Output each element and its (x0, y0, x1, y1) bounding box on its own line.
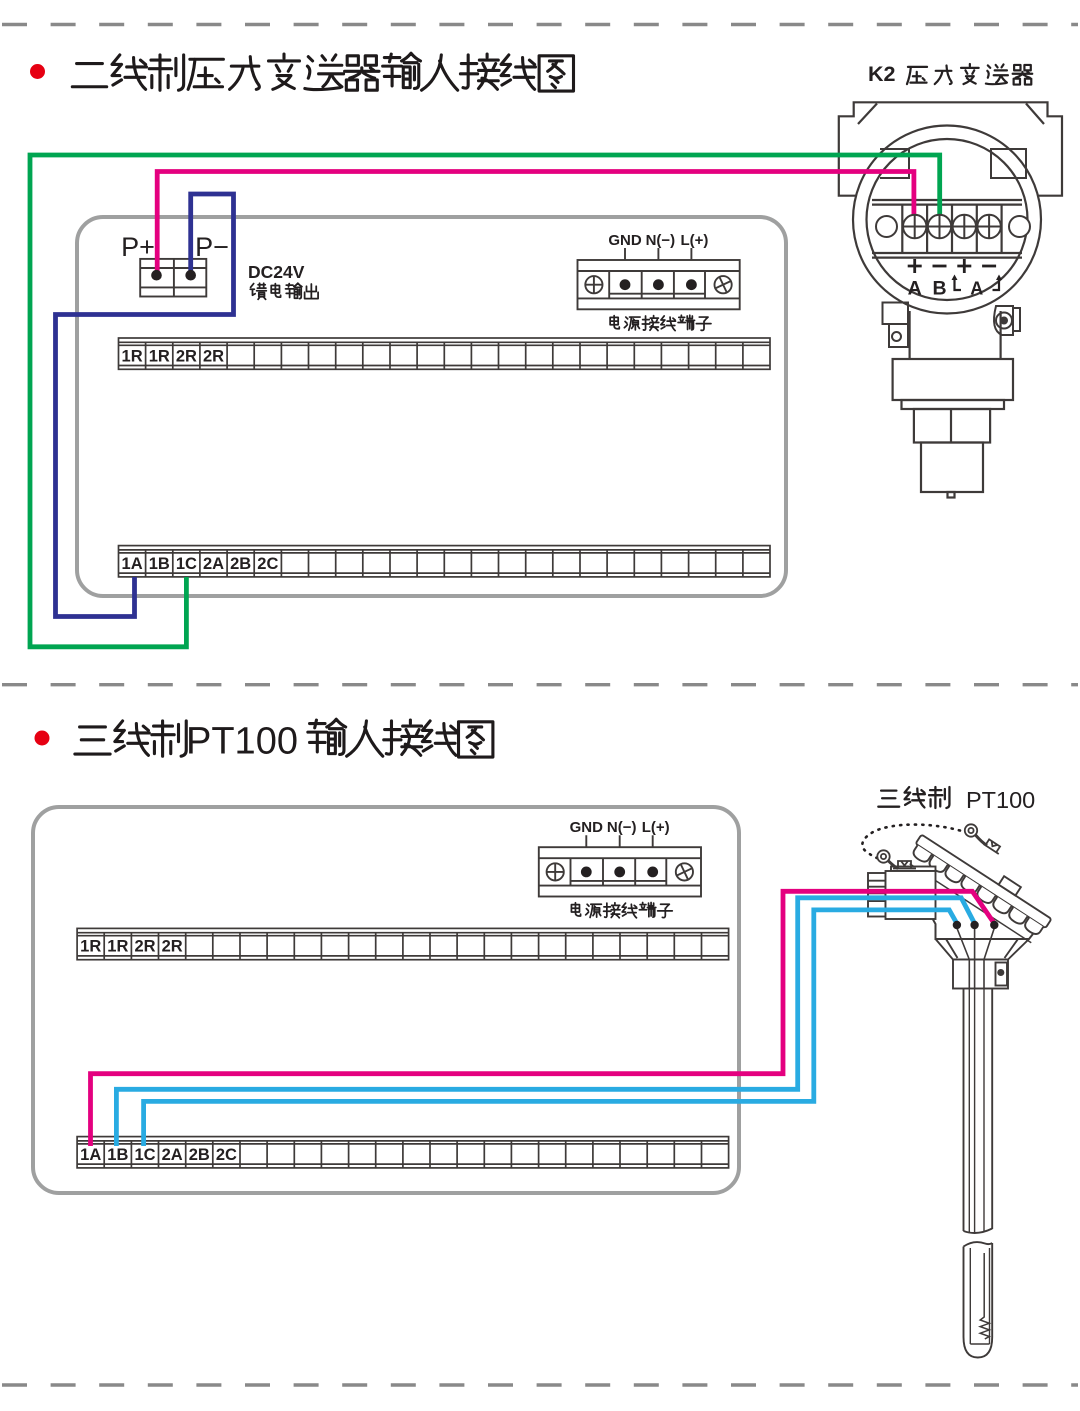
svg-text:P−: P− (195, 232, 229, 262)
svg-text:2A: 2A (162, 1146, 183, 1164)
svg-text:1R: 1R (122, 347, 143, 365)
svg-text:2A: 2A (203, 555, 224, 573)
svg-text:DC24V: DC24V (248, 262, 305, 282)
svg-text:PT100: PT100 (966, 787, 1035, 813)
svg-text:2R: 2R (162, 938, 183, 956)
svg-text:2C: 2C (257, 555, 278, 573)
svg-text:A: A (970, 279, 983, 299)
svg-text:2C: 2C (216, 1146, 237, 1164)
svg-text:2R: 2R (176, 347, 197, 365)
svg-text:GND: GND (570, 819, 604, 836)
svg-text:PT100: PT100 (186, 721, 298, 763)
svg-text:GND: GND (608, 232, 642, 249)
svg-text:1R: 1R (149, 347, 170, 365)
svg-text:N(−): N(−) (646, 232, 676, 249)
svg-text:L(+): L(+) (680, 232, 708, 249)
svg-text:1B: 1B (149, 555, 170, 573)
svg-text:1A: 1A (80, 1146, 101, 1164)
svg-text:1B: 1B (107, 1146, 128, 1164)
svg-text:1C: 1C (176, 555, 197, 573)
svg-text:1C: 1C (134, 1146, 155, 1164)
svg-text:1R: 1R (80, 938, 101, 956)
svg-text:1R: 1R (107, 938, 128, 956)
svg-text:2B: 2B (189, 1146, 210, 1164)
svg-text:K2: K2 (868, 62, 896, 86)
svg-text:L(+): L(+) (642, 819, 670, 836)
svg-text:P+: P+ (121, 232, 155, 262)
svg-text:B: B (932, 278, 946, 300)
svg-text:2R: 2R (203, 347, 224, 365)
svg-text:N(−): N(−) (607, 819, 637, 836)
svg-text:2B: 2B (230, 555, 251, 573)
svg-text:2R: 2R (134, 938, 155, 956)
svg-text:A: A (908, 278, 922, 300)
svg-text:1A: 1A (122, 555, 143, 573)
